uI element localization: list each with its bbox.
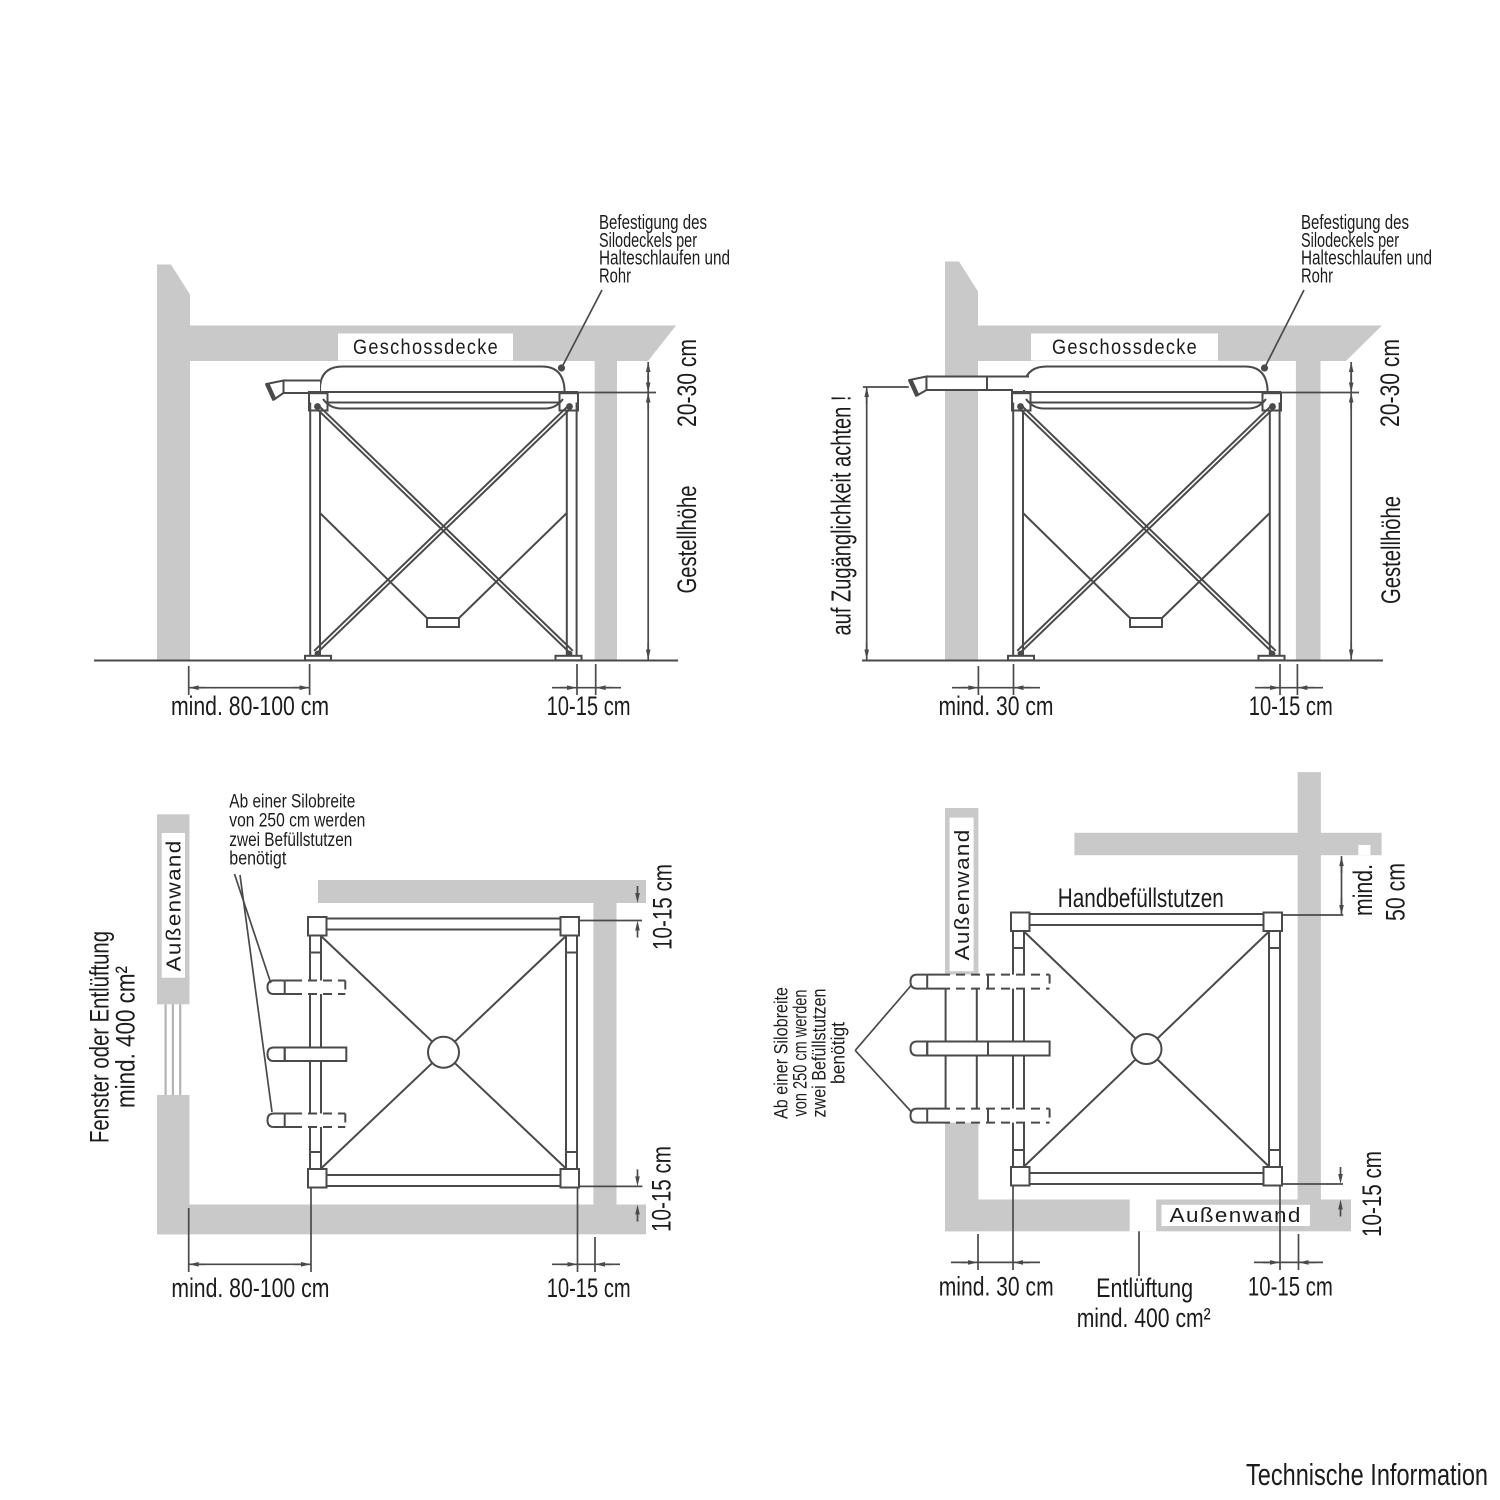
svg-text:Rohr: Rohr <box>1301 264 1333 287</box>
svg-text:mind. 30 cm: mind. 30 cm <box>939 691 1054 721</box>
svg-text:mind.: mind. <box>1348 864 1378 916</box>
svg-text:20-30 cm: 20-30 cm <box>1375 339 1405 427</box>
svg-text:10-15 cm: 10-15 cm <box>648 864 678 950</box>
svg-text:10-15 cm: 10-15 cm <box>547 691 631 721</box>
svg-text:Geschossdecke: Geschossdecke <box>353 336 499 359</box>
svg-text:mind. 400 cm²: mind. 400 cm² <box>111 966 141 1108</box>
svg-text:10-15 cm: 10-15 cm <box>1248 1272 1333 1302</box>
svg-text:benötigt: benötigt <box>229 848 286 870</box>
svg-text:auf Zugänglichkeit achten !: auf Zugänglichkeit achten ! <box>826 396 857 636</box>
svg-text:Technische Information: Technische Information <box>1246 1457 1488 1492</box>
svg-text:mind. 30 cm: mind. 30 cm <box>939 1272 1054 1302</box>
svg-text:Gestellhöhe: Gestellhöhe <box>672 486 702 594</box>
svg-text:10-15 cm: 10-15 cm <box>1249 691 1333 721</box>
svg-text:10-15 cm: 10-15 cm <box>647 1146 677 1232</box>
svg-text:20-30 cm: 20-30 cm <box>672 339 702 427</box>
svg-text:mind. 80-100 cm: mind. 80-100 cm <box>171 691 329 721</box>
svg-text:Außenwand: Außenwand <box>952 828 974 960</box>
svg-text:Entlüftung: Entlüftung <box>1096 1273 1193 1303</box>
svg-text:Rohr: Rohr <box>599 264 631 287</box>
svg-text:mind. 80-100 cm: mind. 80-100 cm <box>171 1273 329 1303</box>
svg-text:Handbefüllstutzen: Handbefüllstutzen <box>1058 883 1224 913</box>
svg-text:benötigt: benötigt <box>828 1021 850 1084</box>
svg-text:Gestellhöhe: Gestellhöhe <box>1376 496 1406 604</box>
svg-text:Außenwand: Außenwand <box>1170 1205 1302 1227</box>
svg-text:10-15 cm: 10-15 cm <box>547 1273 631 1303</box>
svg-text:Geschossdecke: Geschossdecke <box>1052 336 1198 359</box>
svg-text:Außenwand: Außenwand <box>164 839 186 971</box>
svg-text:10-15 cm: 10-15 cm <box>1357 1151 1387 1237</box>
svg-text:50 cm: 50 cm <box>1381 863 1411 921</box>
svg-text:mind. 400 cm²: mind. 400 cm² <box>1077 1303 1211 1333</box>
